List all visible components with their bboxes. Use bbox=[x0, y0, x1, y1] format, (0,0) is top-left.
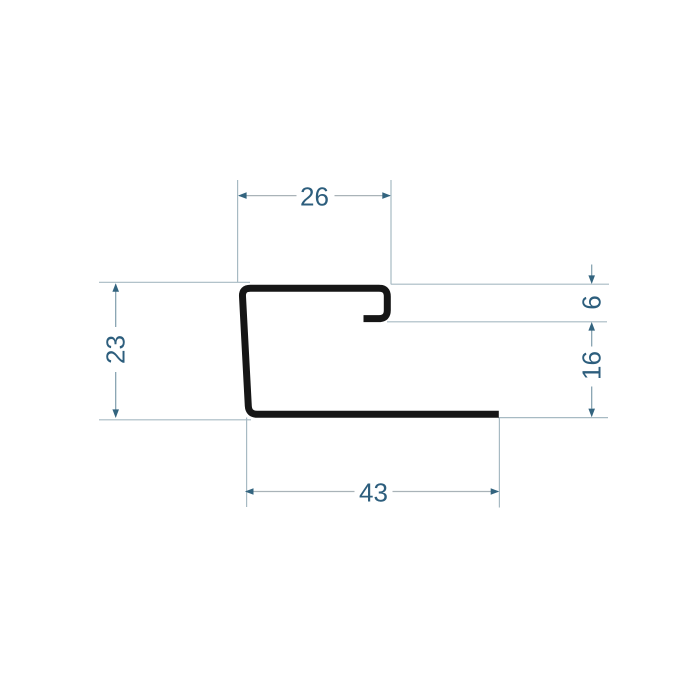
svg-text:26: 26 bbox=[300, 182, 329, 212]
svg-text:23: 23 bbox=[101, 335, 131, 364]
svg-text:43: 43 bbox=[359, 478, 388, 508]
svg-text:6: 6 bbox=[577, 295, 607, 309]
svg-text:16: 16 bbox=[577, 351, 607, 380]
